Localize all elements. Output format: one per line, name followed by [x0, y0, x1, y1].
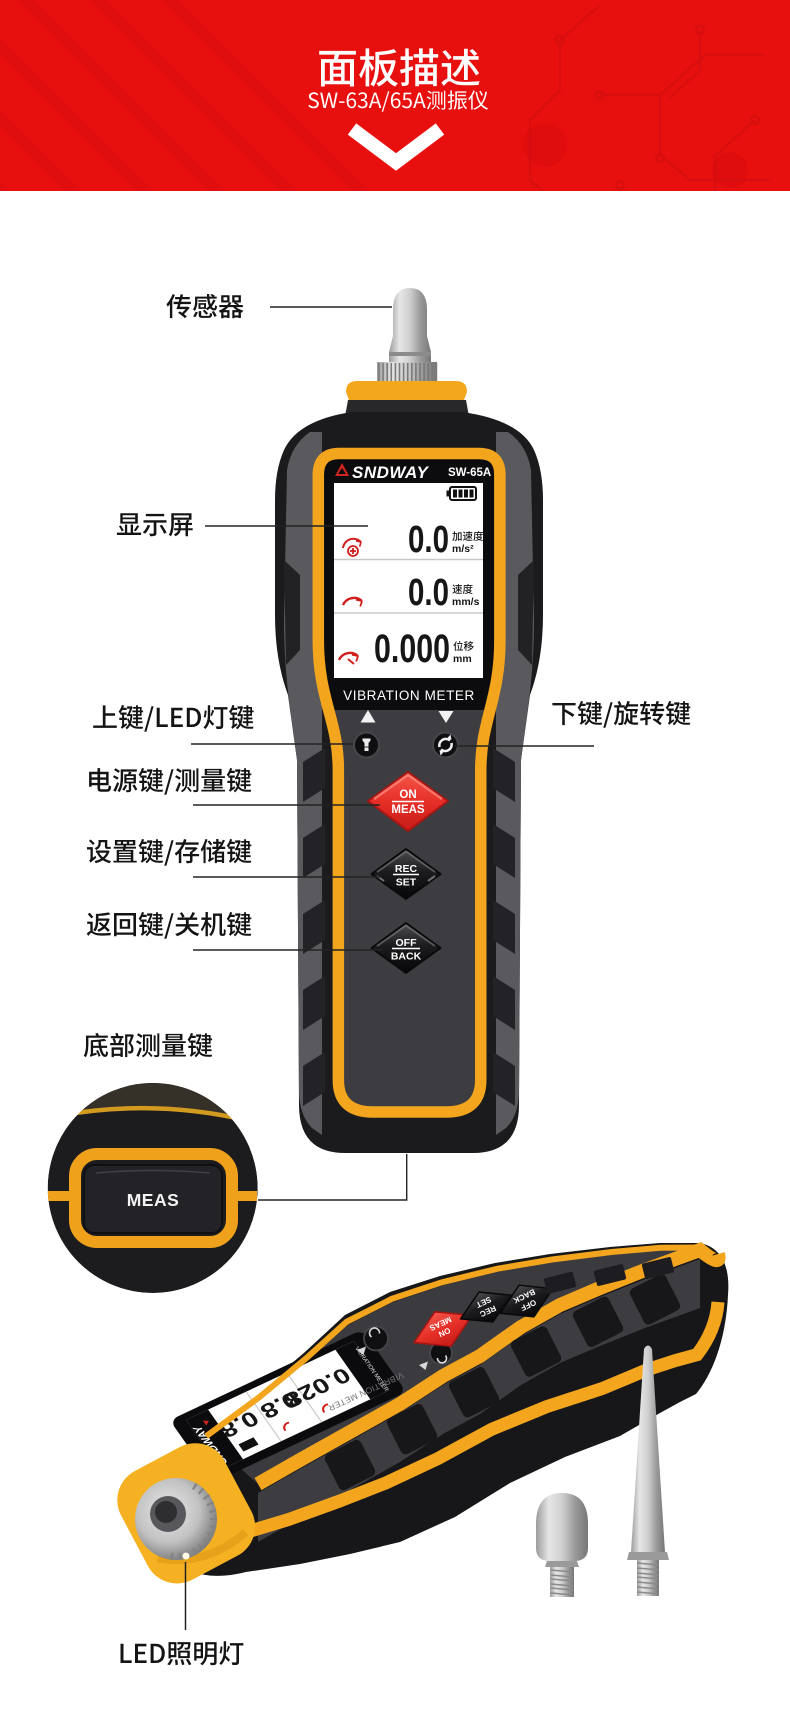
- svg-text:MEAS: MEAS: [127, 1190, 180, 1210]
- svg-text:BACK: BACK: [391, 951, 422, 963]
- svg-text:0.0: 0.0: [408, 572, 449, 614]
- svg-text:SET: SET: [396, 877, 417, 889]
- svg-text:SW-65A: SW-65A: [448, 467, 491, 479]
- svg-text:mm: mm: [453, 653, 472, 665]
- svg-text:VIBRATION METER: VIBRATION METER: [343, 688, 475, 703]
- svg-text:MEAS: MEAS: [391, 804, 425, 816]
- svg-text:ON: ON: [399, 789, 416, 801]
- svg-text:REC: REC: [395, 863, 418, 875]
- svg-text:m/s²: m/s²: [452, 543, 474, 555]
- svg-text:0.000: 0.000: [374, 627, 450, 671]
- svg-text:mm/s: mm/s: [452, 596, 480, 608]
- svg-text:0.0: 0.0: [408, 519, 449, 561]
- svg-text:OFF: OFF: [396, 937, 418, 949]
- svg-text:SNDWAY: SNDWAY: [352, 463, 430, 482]
